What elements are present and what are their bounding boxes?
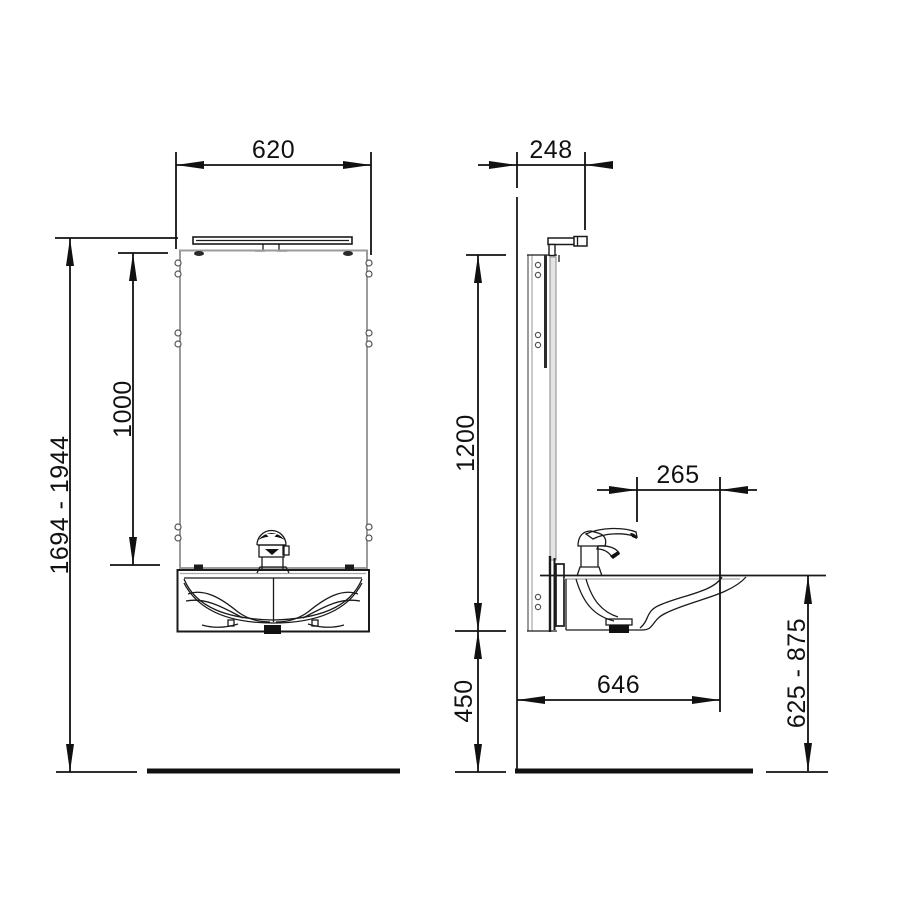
mirror-edge-side bbox=[550, 257, 556, 560]
side-depth-label: 248 bbox=[529, 136, 572, 164]
washbasin-dimension-drawing: 620 1694 - 1944 1000 bbox=[0, 0, 900, 900]
drain-front bbox=[264, 625, 281, 634]
rim-height-label: 625 - 875 bbox=[783, 618, 811, 728]
mounting-tab bbox=[345, 565, 354, 570]
drain-side bbox=[609, 625, 629, 633]
unit-height-label: 1200 bbox=[452, 414, 480, 472]
overall-height-label: 1694 - 1944 bbox=[46, 436, 74, 575]
basin-projection-label: 265 bbox=[656, 461, 699, 489]
mounting-tab bbox=[194, 565, 203, 570]
drawing-background bbox=[0, 0, 900, 900]
mirror-clip-top bbox=[343, 251, 353, 256]
washbasin-front bbox=[178, 565, 370, 635]
front-width-label: 620 bbox=[252, 136, 295, 164]
technical-drawing-canvas: 620 1694 - 1944 1000 bbox=[0, 0, 900, 900]
mirror-height-label: 1000 bbox=[109, 380, 137, 438]
floor-clearance-label: 450 bbox=[450, 679, 478, 722]
total-depth-label: 646 bbox=[597, 671, 640, 699]
mirror-clip-top bbox=[194, 251, 204, 256]
